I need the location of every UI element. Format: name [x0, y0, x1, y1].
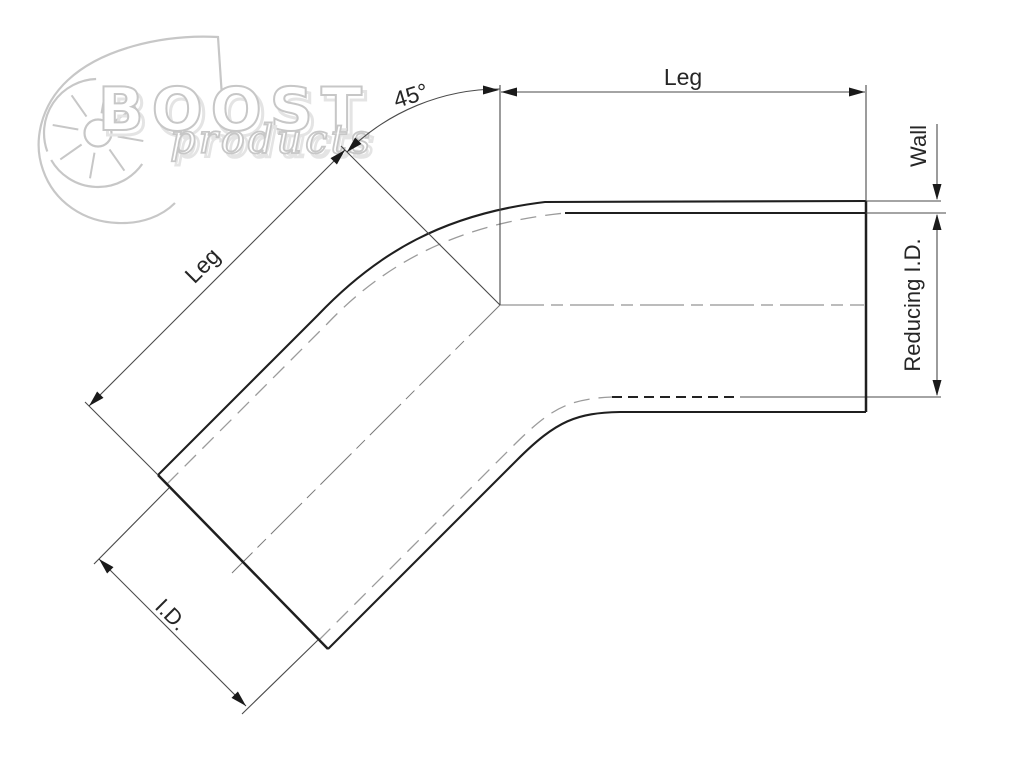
angle-arc-arrow-east	[483, 86, 499, 95]
id-extension-line-southeast	[242, 640, 318, 714]
id-dimension: I.D.	[94, 488, 318, 714]
left-leg-dimension: Leg	[85, 150, 345, 475]
pipe-outline	[158, 201, 941, 649]
wall-label: Wall	[906, 125, 931, 167]
brand-script: products	[170, 117, 373, 163]
angle-slanted-extension-line	[341, 146, 500, 305]
watermark-logo: BOOST BOOST products products	[39, 37, 378, 223]
id-label: I.D.	[150, 594, 192, 636]
centerlines	[232, 305, 864, 573]
top-leg-dimension: Leg	[501, 64, 866, 201]
top-leg-arrow-right	[849, 88, 865, 97]
wheel-ring-arc	[51, 160, 142, 187]
angle-label: 45°	[390, 78, 431, 113]
top-leg-arrow-left	[501, 88, 517, 97]
wheel-ring-arc	[44, 79, 96, 152]
wall-dimension: Wall	[866, 124, 946, 213]
pipe-inner-bottom-hidden-edge	[319, 397, 612, 640]
pipe-inner-top-hidden-edge	[167, 213, 565, 484]
left-leg-centerline	[232, 305, 500, 573]
reducing-id-arrow-up	[933, 214, 942, 230]
drawing-canvas: BOOST BOOST products products 45° Leg	[0, 0, 1024, 768]
technical-drawing-page: BOOST BOOST products products 45° Leg	[0, 0, 1024, 768]
reducing-id-arrow-down	[933, 380, 942, 396]
top-leg-label: Leg	[664, 64, 702, 90]
reducing-id-label: Reducing I.D.	[900, 238, 925, 371]
left-leg-face-extension-line	[85, 402, 158, 475]
wall-arrow-down	[933, 184, 942, 200]
pipe-outer-top-edge	[158, 201, 866, 475]
left-leg-label: Leg	[180, 243, 226, 289]
pipe-outer-bottom-edge	[328, 412, 866, 649]
id-extension-line-northwest	[94, 488, 169, 564]
left-leg-dimension-line	[89, 150, 345, 406]
reducing-id-dimension: Reducing I.D.	[900, 214, 942, 396]
